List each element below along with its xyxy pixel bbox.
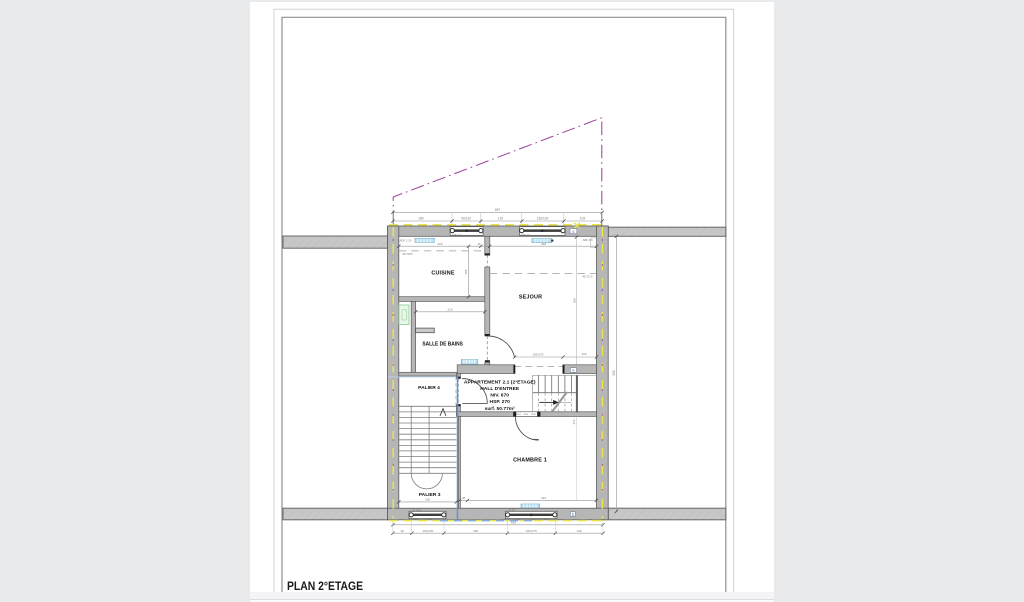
svg-text:+A 130: +A 130: [412, 508, 421, 512]
svg-text:265: 265: [437, 242, 442, 246]
svg-text:PALIER 3: PALIER 3: [419, 492, 441, 498]
svg-text:surf. 50.77m²: surf. 50.77m²: [485, 406, 516, 412]
svg-text:120: 120: [498, 216, 504, 220]
svg-text:105.42: 105.42: [521, 233, 530, 237]
svg-text:818: 818: [511, 520, 516, 524]
svg-text:NIV. 670: NIV. 670: [490, 393, 509, 399]
svg-text:ADF 2.10: ADF 2.10: [400, 239, 412, 243]
svg-text:HSP. 270: HSP. 270: [490, 399, 511, 405]
svg-text:+A 90: +A 90: [508, 508, 516, 512]
svg-text:140: 140: [577, 529, 582, 533]
svg-text:433: 433: [541, 496, 546, 500]
svg-text:697: 697: [495, 208, 501, 212]
svg-text:CUISINE: CUISINE: [431, 271, 454, 277]
svg-text:150/175: 150/175: [526, 529, 537, 533]
svg-text:900: 900: [612, 370, 616, 376]
svg-text:45°/270: 45°/270: [582, 274, 593, 278]
svg-text:48: 48: [462, 496, 466, 500]
svg-text:155: 155: [464, 269, 468, 274]
svg-text:CHAMBRE 1: CHAMBRE 1: [513, 457, 547, 463]
svg-text:PALIER 4: PALIER 4: [418, 385, 440, 391]
svg-text:103: 103: [580, 216, 586, 220]
svg-text:150: 150: [473, 529, 478, 533]
svg-text:16: 16: [477, 242, 481, 246]
svg-text:PLAN 2°ETAGE: PLAN 2°ETAGE: [287, 579, 363, 593]
svg-text:APPARTEMENT 2.1 (2°ETAGE): APPARTEMENT 2.1 (2°ETAGE): [464, 379, 536, 385]
svg-text:270: 270: [572, 419, 576, 424]
svg-text:180: 180: [418, 216, 424, 220]
svg-text:HALL D'ENTREE: HALL D'ENTREE: [480, 386, 520, 392]
svg-text:150/120: 150/120: [422, 529, 433, 533]
svg-text:SEJOUR: SEJOUR: [519, 294, 542, 300]
svg-text:ABF 2/0: ABF 2/0: [583, 238, 594, 242]
svg-text:B: B: [572, 369, 574, 373]
svg-text:600: 600: [573, 298, 577, 303]
svg-text:150/175: 150/175: [533, 353, 544, 357]
svg-text:130/120: 130/120: [537, 216, 549, 220]
svg-text:SALLE DE BAINS: SALLE DE BAINS: [422, 342, 463, 348]
svg-text:90: 90: [401, 529, 405, 533]
svg-text:90/120: 90/120: [461, 216, 471, 220]
svg-text:100: 100: [581, 352, 586, 356]
svg-text:210: 210: [447, 307, 452, 311]
svg-text:105.42: 105.42: [452, 233, 461, 237]
svg-text:B: B: [572, 513, 574, 517]
svg-text:45°/255: 45°/255: [402, 252, 413, 256]
